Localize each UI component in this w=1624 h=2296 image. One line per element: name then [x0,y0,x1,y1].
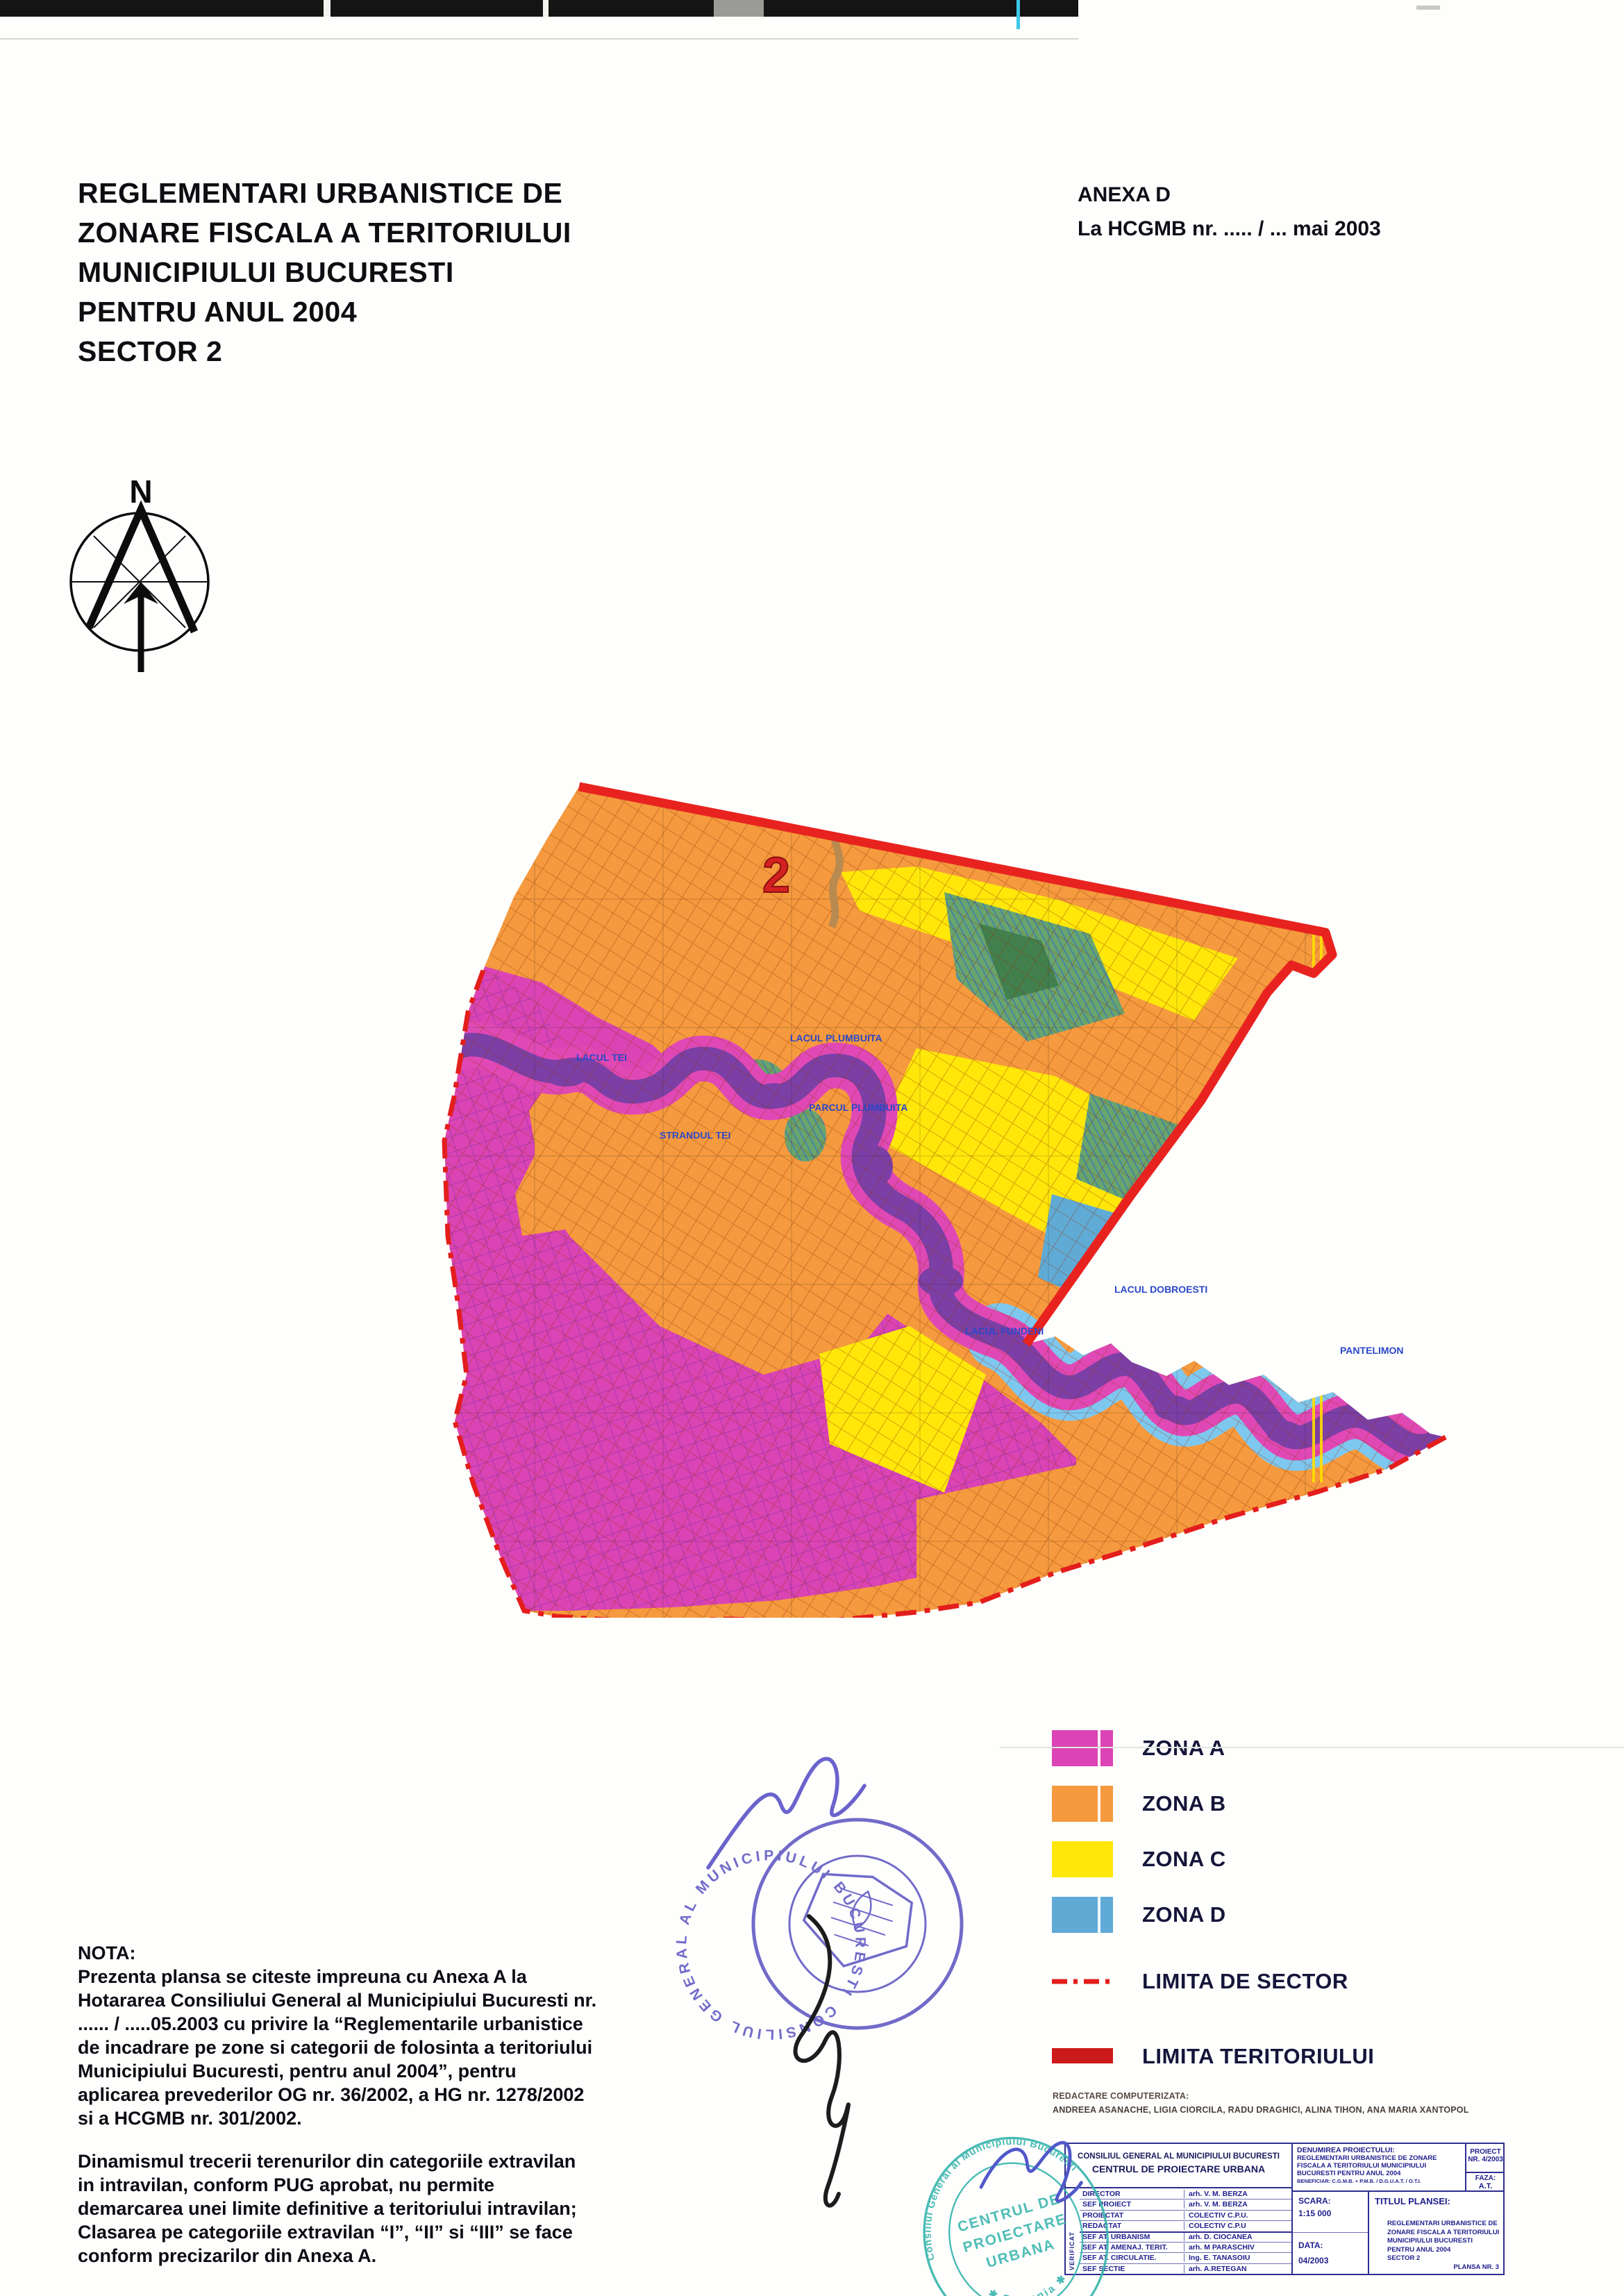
row-name: COLECTIV C.P.U [1184,2222,1246,2230]
page-title-line: PENTRU ANUL 2004 [78,292,980,332]
credits-heading: REDACTARE COMPUTERIZATA: [1053,2091,1189,2101]
scan-gray-tick [1416,6,1440,10]
sheet-title-line: MUNICIPIULUI BUCURESTI [1387,2237,1499,2246]
nota-line: in intravilan, conform PUG aprobat, nu p… [78,2173,744,2197]
project-name-cell: DENUMIREA PROIECTULUI: REGLEMENTARI URBA… [1293,2144,1465,2192]
row-name: arh. D. CIOCANEA [1184,2233,1253,2241]
sheet-title-line: ZONARE FISCALA A TERITORIULUI [1387,2229,1499,2238]
scan-blue-tick [1016,0,1020,29]
map-label: LACUL FUNDENI [965,1325,1044,1336]
nota-line: ...... / .....05.2003 cu privire la “Reg… [78,2012,744,2036]
annex-reference: ANEXA D La HCGMB nr. ..... / ... mai 200… [1078,178,1381,246]
project-name-line: FISCALA A TERITORIULUI MUNICIPIULUI [1297,2162,1465,2170]
project-name-label: DENUMIREA PROIECTULUI: [1297,2146,1465,2154]
proiect-label: PROIECT [1466,2148,1505,2156]
scara-value: 1:15 000 [1298,2209,1331,2218]
map-sheet-page: REGLEMENTARI URBANISTICE DE ZONARE FISCA… [0,0,1624,2296]
map-street-texture [430,750,1458,1618]
titlul-label: TITLUL PLANSEI: [1375,2196,1450,2206]
page-title-line: MUNICIPIULUI BUCURESTI [78,253,980,292]
nota-line: Hotararea Consiliului General al Municip… [78,1988,744,2012]
sector-limit-swatch [1052,1975,1113,1988]
legend-label: ZONA A [1142,1736,1225,1761]
legend-label: LIMITA DE SECTOR [1142,1969,1348,1994]
phase-cell: FAZA: A.T. [1465,2173,1505,2192]
nota-heading: NOTA: [78,1941,744,1965]
map-label: LACUL DOBROESTI [1114,1284,1207,1295]
scan-notch [324,0,330,17]
nota-line: Municipiului Bucuresti, pentru anul 2004… [78,2059,744,2083]
proiect-number: NR. 4/2003 [1466,2156,1505,2163]
page-title-line: REGLEMENTARI URBANISTICE DE [78,174,980,213]
zona-c-swatch [1052,1841,1113,1877]
annex-label: ANEXA D [1078,178,1381,212]
project-name-line: REGLEMENTARI URBANISTICE DE ZONARE [1297,2154,1465,2162]
legend-label: ZONA D [1142,1902,1226,1927]
nota-line: si a HCGMB nr. 301/2002. [78,2106,744,2130]
cpu-teal-stamp: Consiliul General al Municipiului Bucure… [903,2125,1139,2296]
annex-decision-number: La HCGMB nr. ..... / ... mai 2003 [1078,212,1381,246]
project-number-cell: PROIECT NR. 4/2003 [1465,2144,1505,2173]
sheet-title-lines: REGLEMENTARI URBANISTICE DE ZONARE FISCA… [1387,2220,1499,2263]
sheet-title-line: PENTRU ANUL 2004 [1387,2246,1499,2255]
faza-value: A.T. [1466,2182,1505,2190]
scale-date-cell: SCARA: 1:15 000 DATA: 04/2003 [1293,2192,1368,2274]
compass-rose: N [62,467,217,678]
page-title-line: SECTOR 2 [78,332,980,371]
plansa-number: PLANSA NR. 3 [1453,2263,1499,2271]
nota-line: Dinamismul trecerii terenurilor din cate… [78,2150,744,2173]
nota-line: demarcarea unei limite definitive a teri… [78,2197,744,2220]
nota-line: aplicarea prevederilor OG nr. 36/2002, a… [78,2083,744,2106]
scara-label: SCARA: [1298,2196,1331,2206]
scan-artifact-line [1000,1747,1624,1748]
map-label: LACUL PLUMBUITA [790,1032,882,1044]
legend-label: ZONA B [1142,1791,1226,1816]
legend-label: LIMITA TERITORIULUI [1142,2044,1374,2069]
nota-line: Clasarea pe categoriile extravilan “I”, … [78,2220,744,2244]
row-name: COLECTIV C.P.U. [1184,2211,1248,2220]
teal-stamp-ring-bottom: ✱ Romania ✱ [984,2266,1073,2296]
zona-d-swatch [1052,1897,1113,1933]
nota-line: de incadrare pe zone si categorii de fol… [78,2036,744,2059]
beneficiar: BENEFICIAR: C.G.M.B. + P.M.B. / D.G.U.A.… [1297,2178,1465,2184]
sheet-title-line: SECTOR 2 [1387,2254,1499,2263]
sheet-title-cell: TITLUL PLANSEI: REGLEMENTARI URBANISTICE… [1368,2192,1505,2274]
zoning-map: 2 LACUL TEI STRANDUL TEI LACUL PLUMBUITA… [430,750,1458,1618]
legend-label: ZONA C [1142,1847,1226,1872]
zona-a-swatch [1052,1730,1113,1766]
row-name: arh. A.RETEGAN [1184,2265,1247,2273]
data-value: 04/2003 [1298,2256,1328,2265]
project-name-line: BUCURESTI PENTRU ANUL 2004 [1297,2170,1465,2177]
map-label: PARCUL PLUMBUITA [809,1102,907,1113]
credits-names: ANDREEA ASANACHE, LIGIA CIORCILA, RADU D… [1053,2105,1469,2115]
faza-label: FAZA: [1466,2175,1505,2182]
page-title: REGLEMENTARI URBANISTICE DE ZONARE FISCA… [78,174,980,371]
row-name: arh. V. M. BERZA [1184,2200,1248,2209]
nota-block: NOTA: Prezenta plansa se citeste impreun… [78,1941,744,2268]
territory-limit-swatch [1052,2048,1113,2066]
scan-shadow-line [0,38,1078,40]
row-name: arh. V. M. BERZA [1184,2190,1248,2198]
scan-notch [714,0,764,17]
signature-blue [708,1759,864,1868]
title-block-right: DENUMIREA PROIECTULUI: REGLEMENTARI URBA… [1291,2144,1503,2274]
map-sector-number: 2 [762,848,790,903]
map-label: PANTELIMON [1340,1345,1404,1356]
zona-b-swatch [1052,1786,1113,1822]
svg-text:✱ Romania ✱: ✱ Romania ✱ [984,2266,1073,2296]
scan-notch [543,0,549,17]
map-label: STRANDUL TEI [660,1130,730,1141]
sheet-title-line: REGLEMENTARI URBANISTICE DE [1387,2220,1499,2229]
row-name: arh. M PARASCHIV [1184,2243,1255,2252]
map-label: LACUL TEI [576,1052,627,1063]
nota-line: Prezenta plansa se citeste impreuna cu A… [78,1965,744,1988]
scan-edge-strip [0,0,1078,17]
row-name: Ing. E. TANASOIU [1184,2254,1250,2262]
nota-line: conform precizarilor din Anexa A. [78,2244,744,2268]
signature-black [796,1916,848,2206]
page-title-line: ZONARE FISCALA A TERITORIULUI [78,213,980,253]
data-label: DATA: [1298,2240,1323,2250]
